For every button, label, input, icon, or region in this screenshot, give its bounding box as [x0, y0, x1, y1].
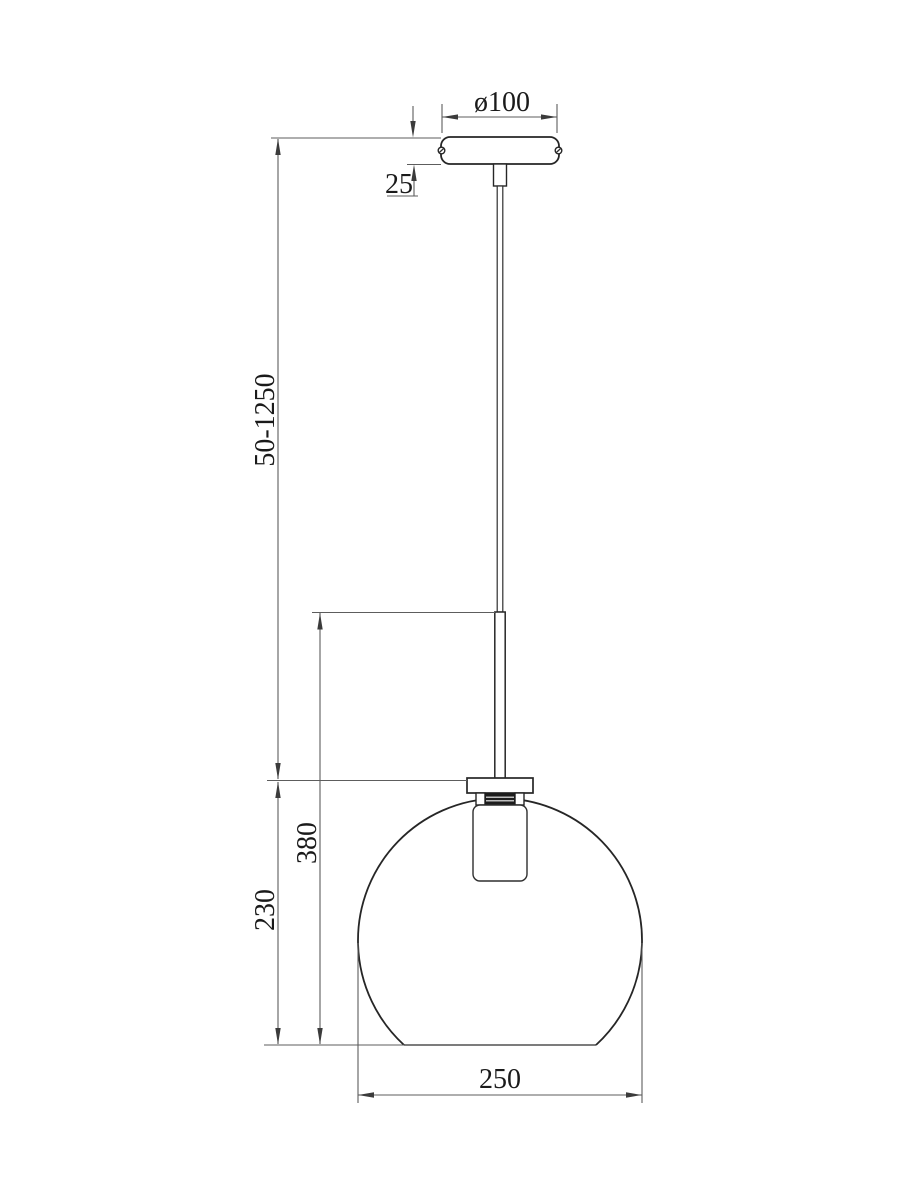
arrow-right-icon	[626, 1092, 642, 1097]
lamp-figure	[358, 137, 642, 1045]
arrow-left-icon	[442, 114, 458, 119]
dim-label-shade-height: 230	[250, 889, 281, 931]
arrow-up-icon	[275, 139, 280, 156]
dim-label-suspension-length: 50-1250	[250, 373, 281, 466]
holder-tab-left	[476, 793, 485, 805]
dim-label-shade-diameter: 250	[479, 1064, 521, 1095]
cable-gland	[494, 164, 507, 186]
socket-thread-band	[485, 794, 515, 806]
pendant-lamp-drawing: ø100 25 50-1250	[0, 0, 900, 1200]
arrow-down-icon	[275, 1028, 280, 1045]
dim-canopy-height: 25	[271, 106, 441, 200]
dim-label-canopy-diameter: ø100	[474, 87, 530, 118]
dim-label-canopy-height: 25	[385, 169, 413, 200]
dim-canopy-diameter: ø100	[442, 87, 557, 133]
dim-suspension-length: 50-1250	[250, 139, 281, 780]
arrow-right-icon	[541, 114, 557, 119]
dim-label-body-height: 380	[292, 822, 323, 864]
shade-holder	[467, 778, 533, 805]
arrow-up-icon	[275, 782, 280, 799]
canopy-body	[441, 137, 559, 164]
arrow-down-icon	[410, 121, 415, 138]
lamp-socket	[473, 805, 527, 881]
stem-rod	[495, 612, 505, 781]
drawing-canvas: ø100 25 50-1250	[0, 0, 900, 1200]
ceiling-canopy	[438, 137, 562, 186]
holder-cap	[467, 778, 533, 793]
arrow-down-icon	[317, 1028, 322, 1045]
suspension-cable	[497, 186, 503, 612]
arrow-left-icon	[358, 1092, 374, 1097]
arrow-up-icon	[317, 613, 322, 630]
arrow-down-icon	[275, 763, 280, 780]
holder-tab-right	[515, 793, 524, 805]
